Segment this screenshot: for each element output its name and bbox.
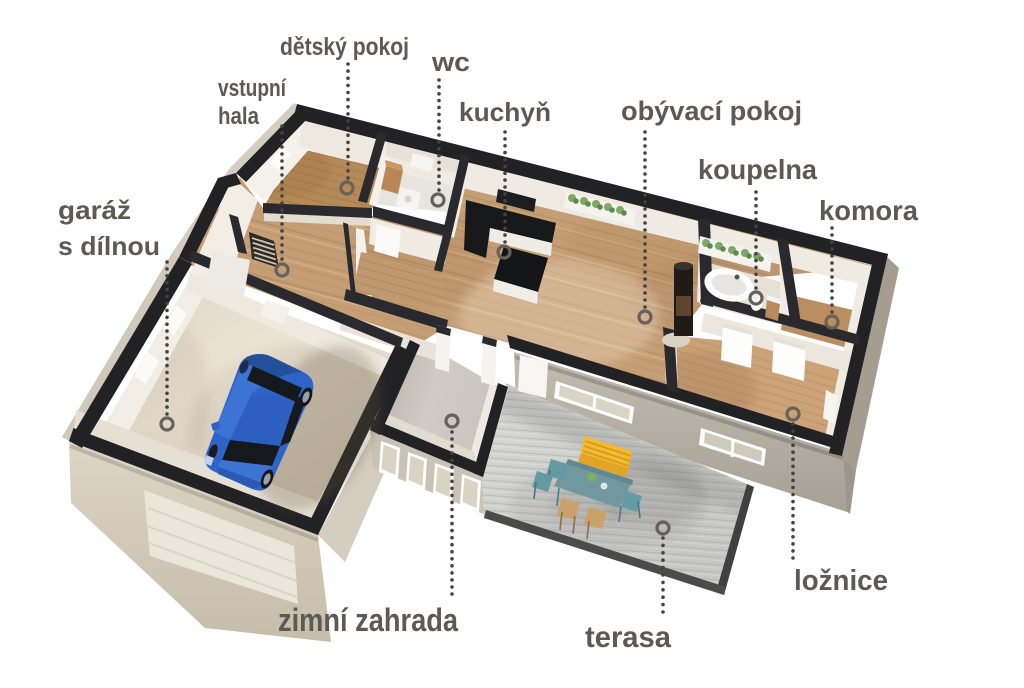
svg-text:garáž: garáž <box>58 195 131 225</box>
svg-text:koupelna: koupelna <box>698 154 817 185</box>
svg-text:s dílnou: s dílnou <box>58 231 160 261</box>
svg-text:zimní zahrada: zimní zahrada <box>278 602 458 638</box>
svg-text:wc: wc <box>431 47 470 77</box>
svg-text:kuchyň: kuchyň <box>459 97 551 127</box>
svg-text:dětský pokoj: dětský pokoj <box>280 33 409 61</box>
svg-text:vstupní: vstupní <box>218 75 287 102</box>
svg-text:ložnice: ložnice <box>794 565 888 597</box>
svg-text:terasa: terasa <box>585 621 671 654</box>
svg-text:komora: komora <box>819 195 918 226</box>
svg-text:hala: hala <box>218 103 260 130</box>
svg-text:obývací pokoj: obývací pokoj <box>621 96 802 126</box>
